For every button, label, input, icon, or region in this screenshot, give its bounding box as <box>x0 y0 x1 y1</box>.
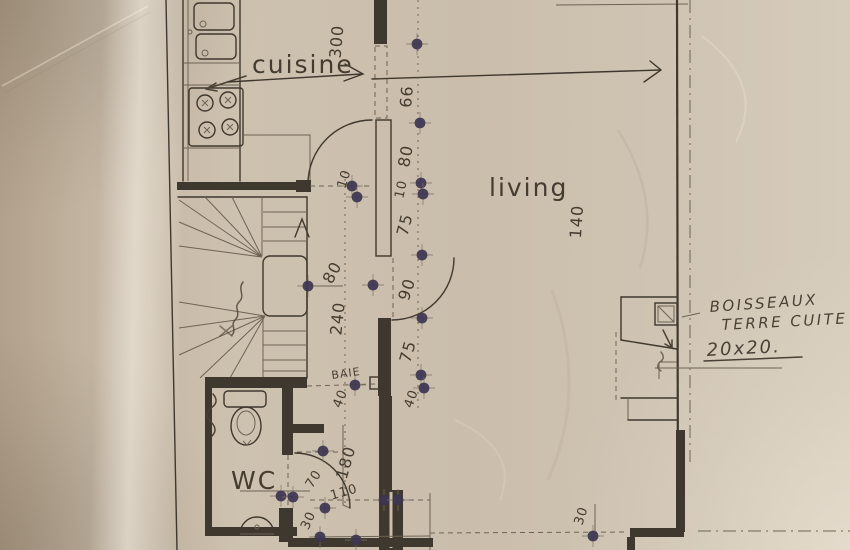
door-jamb <box>296 180 311 192</box>
dim-140: 140 <box>566 204 587 239</box>
hall-bottom-wall <box>205 377 307 388</box>
wc-bottom-wall <box>205 527 297 536</box>
paper-background <box>0 0 850 550</box>
wc-right-wall-upper <box>282 387 293 455</box>
entry-stub-wall <box>282 424 324 433</box>
dim-300: 300 <box>326 24 348 59</box>
wc-left-wall <box>205 385 212 532</box>
dim-66: 66 <box>396 85 417 109</box>
wc-right-wall-lower <box>279 508 293 542</box>
dim-80: 80 <box>394 143 417 168</box>
kitchen-bottom-wall <box>177 182 303 190</box>
dim-240: 240 <box>326 301 348 336</box>
annotation-flue-size: 20x20. <box>706 336 781 361</box>
floor-plan-drawing: cuisine living WC BAIE BOISSEAUX TERRE C… <box>0 0 850 550</box>
floor-plan-photo: cuisine living WC BAIE BOISSEAUX TERRE C… <box>0 0 850 550</box>
flue-tile-20x20 <box>655 303 677 325</box>
room-label-living: living <box>489 173 568 202</box>
room-label-wc: WC <box>231 466 277 495</box>
